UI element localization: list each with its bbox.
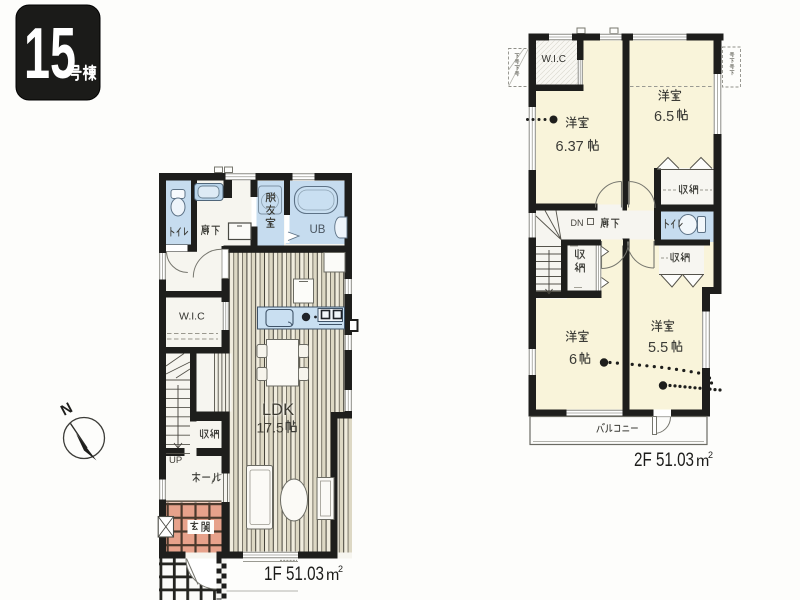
svg-text:UP: UP	[169, 455, 182, 466]
svg-text:W.I.C: W.I.C	[179, 311, 205, 323]
svg-text:5.5: 5.5	[648, 340, 668, 356]
svg-text:15: 15	[24, 13, 76, 94]
svg-text:LDK: LDK	[262, 401, 294, 419]
svg-text:DN: DN	[571, 218, 584, 228]
svg-text:6.5: 6.5	[654, 109, 674, 125]
svg-text:17.5: 17.5	[257, 420, 284, 436]
svg-text:1F 51.03: 1F 51.03	[264, 564, 324, 585]
svg-text:6: 6	[569, 352, 577, 368]
svg-text:6.37: 6.37	[556, 139, 584, 155]
svg-text:2: 2	[708, 450, 713, 460]
svg-text:W.I.C: W.I.C	[542, 54, 566, 65]
svg-text:UB: UB	[310, 224, 326, 236]
svg-text:2: 2	[338, 564, 343, 574]
svg-text:2F 51.03: 2F 51.03	[634, 450, 694, 471]
